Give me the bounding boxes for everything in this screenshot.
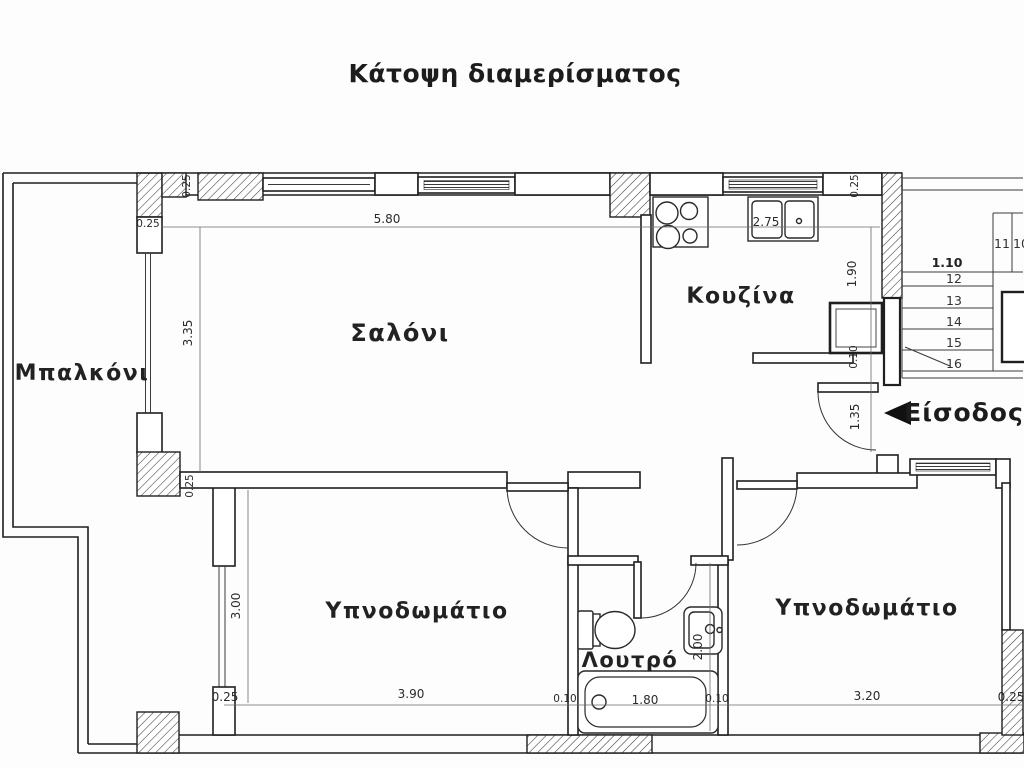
bedroom-left-door [507,483,568,548]
doors [507,383,878,618]
kitchen-divider-wall [641,215,651,363]
bathtub-drain [592,695,606,709]
dim-wall-bottom-right: 0.25 [998,690,1024,704]
label-kitchen: Κουζίνα [686,284,795,309]
label-bedroom-right: Υπνοδωμάτιο [774,596,958,621]
dim-bath-wall-left: 0.10 [553,693,576,705]
stair-step-number: 16 [946,356,962,371]
wall-hatch-segment [527,735,652,753]
page-title: Κάτοψη διαμερίσματος [348,59,681,88]
kitchen-bottom-wall [753,353,853,363]
label-entrance: Είσοδος [904,398,1024,427]
elevator-shaft [1002,292,1024,362]
column-pillar [137,452,180,496]
dim-bath-wall-right: 0.10 [705,693,728,705]
dim-living-depth: 3.35 [181,320,195,347]
balcony-walls [3,173,137,753]
stair-step-number: 10 [1013,236,1024,251]
dim-bedroom-left-depth: 3.00 [229,593,243,620]
dim-wall-left-jamb: 0.25 [136,218,159,230]
dim-stairs-width: 1.10 [932,255,963,270]
bedroom-right-top-wall [797,459,1010,488]
dim-living-width: 5.80 [374,212,401,226]
label-bathroom: Λουτρό [582,648,679,672]
stair-step-number: 14 [946,314,962,329]
stairwell: 11 10 12 13 14 15 16 1.10 [902,178,1024,378]
floor-plan-canvas: Κάτοψη διαμερίσματος [0,0,1024,768]
column-pillar [610,173,650,217]
column-pillar [137,173,162,217]
dim-kitchen-depth: 1.90 [845,261,859,288]
bedroom-right-door [737,481,797,545]
stair-step-number: 15 [946,335,962,350]
column-pillar [137,712,179,753]
stair-step-number: 13 [946,293,962,308]
dim-wall-top-left: 0.25 [181,174,193,197]
dim-bedroom-left-width: 3.90 [398,687,425,701]
label-living-room: Σαλόνι [350,319,449,347]
stair-step-number: 11 [994,236,1010,251]
dim-kitchen-width: 2.75 [753,215,780,229]
wall-hatch-segment [980,733,1024,753]
floor-plan-page: Κάτοψη διαμερίσματος [0,0,1024,768]
dim-wall-top-right: 0.25 [849,174,861,197]
dim-wall-left-mid: 0.25 [184,474,196,497]
stair-step-number: 12 [946,271,962,286]
stove [653,197,708,249]
dim-entrance-width: 1.35 [848,404,862,431]
dim-bathtub-length: 1.80 [632,693,659,707]
dim-wall-bottom-left: 0.25 [212,690,239,704]
label-balcony: Μπαλκόνι [15,361,150,386]
dim-bedroom-right-width: 3.20 [854,689,881,703]
toilet [578,611,635,649]
dim-kitchen-wall: 0.10 [848,345,860,368]
label-bedroom-left: Υπνοδωμάτιο [324,599,508,624]
dim-bathroom-depth: 2.00 [691,634,705,661]
